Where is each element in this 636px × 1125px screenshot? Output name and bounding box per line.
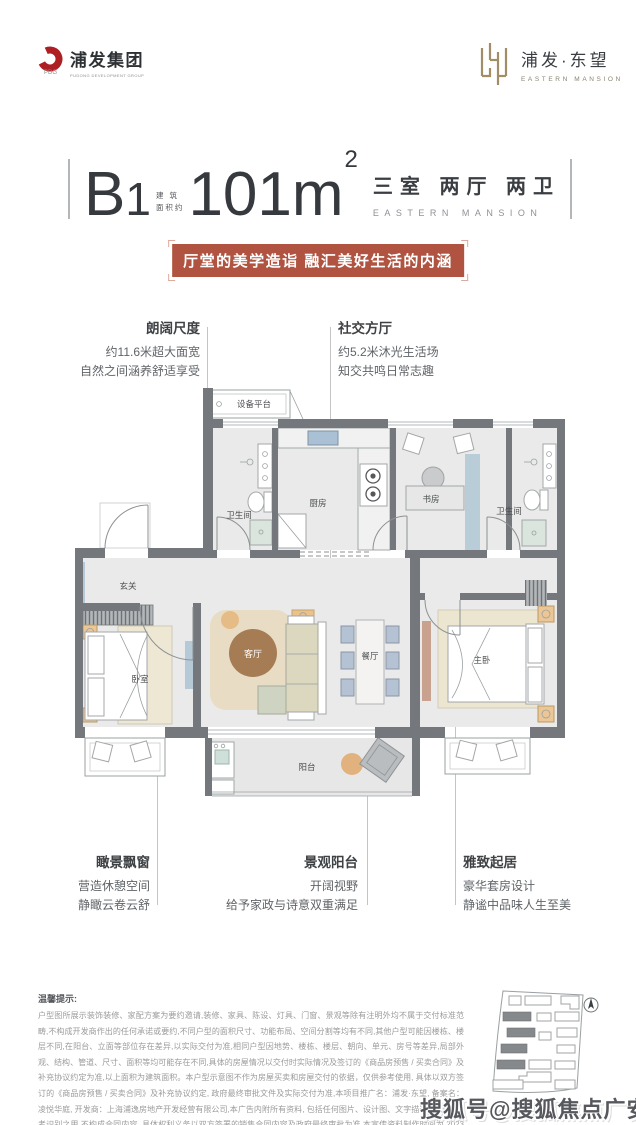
project-logo: 浦发·东望 EASTERN MANSION [477, 40, 623, 88]
developer-name: 浦发集团 [70, 46, 144, 71]
room-label-study: 书房 [422, 494, 439, 504]
room-count-sub: EASTERN MANSION [373, 208, 560, 218]
watermark: 搜狐号@搜狐焦点广安站 [420, 1092, 636, 1124]
callout-master-suite: 雅致起居 豪华套房设计 静谧中品味人生至美 [463, 851, 636, 914]
developer-logo: PDG 浦发集团 PUDONG DEVELOPMENT GROUP [35, 46, 144, 78]
bay-window-master [445, 738, 530, 774]
callout-balcony: 景观阳台 开阔视野 给予家政与诗意双重满足 [128, 851, 358, 914]
entry-door [100, 503, 150, 548]
disclaimer-block: 温馨提示: 户型图所展示装饰装修、家配方案为要约邀请,装修、家具、陈设、灯具、门… [38, 992, 464, 1125]
pudong-group-icon: PDG [35, 46, 65, 78]
callout-scale: 朗阔尺度 约11.6米超大面宽 自然之间涵养舒适享受 [0, 317, 200, 380]
dining-furniture [341, 620, 399, 704]
banner-corner [168, 274, 175, 281]
room-count: 三室 两厅 两卫 [373, 170, 560, 199]
banner-corner [461, 240, 468, 247]
room-label-living: 客厅 [244, 648, 262, 659]
callout-social-hall: 社交方厅 约5.2米沐光生活场 知交共鸣日常志趣 [338, 317, 568, 380]
living-room-furniture [210, 610, 326, 720]
disclaimer-label: 温馨提示: [38, 992, 464, 1005]
bay-window-bedroom [85, 738, 165, 776]
svg-text:设备平台: 设备平台 [237, 399, 271, 409]
banner-corner [461, 274, 468, 281]
room-label-kitchen: 厨房 [309, 498, 326, 508]
developer-subtitle: PUDONG DEVELOPMENT GROUP [70, 73, 144, 78]
slogan-text: 厅堂的美学造诣 融汇美好生活的内涵 [183, 253, 453, 270]
left-bracket-decoration [68, 159, 70, 219]
floorplan-drawing: 设备平台 [60, 386, 572, 822]
slogan-banner: 厅堂的美学造诣 融汇美好生活的内涵 [172, 244, 464, 277]
banner-corner [168, 240, 175, 247]
equipment-platform: 设备平台 [206, 390, 303, 419]
room-label-bath2: 卫生间 [496, 506, 522, 516]
area-note: 建 筑 面积约 [156, 190, 185, 214]
room-label-bath1: 卫生间 [226, 510, 252, 520]
room-label-master: 主卧 [473, 655, 491, 665]
unit-code: B1 [84, 168, 151, 221]
disclaimer-text: 户型图所展示装饰装修、家配方案为要约邀请,装修、家具、陈设、灯具、门窗、景观等除… [38, 1008, 464, 1125]
project-name: 浦发·东望 [521, 46, 623, 71]
room-label-bedroom: 卧室 [131, 674, 149, 684]
room-label-balcony: 阳台 [298, 762, 315, 772]
svg-text:PDG: PDG [44, 70, 57, 76]
site-plan-map [483, 988, 603, 1098]
project-subtitle: EASTERN MANSION [521, 76, 623, 83]
right-bracket-decoration [570, 159, 572, 219]
eastern-mansion-emblem-icon [477, 40, 511, 88]
room-label-dining: 餐厅 [361, 651, 379, 661]
floorplan-poster: { "header": { "left_logo": {"name": "浦发集… [0, 0, 636, 1125]
unit-area: 101m2 [188, 168, 356, 221]
north-arrow-icon [584, 998, 598, 1012]
unit-title-block: B1 建 筑 面积约 101m2 三室 两厅 两卫 EASTERN MANSIO… [74, 157, 566, 221]
room-count-block: 三室 两厅 两卫 EASTERN MANSION [373, 170, 560, 218]
room-label-foyer: 玄关 [119, 581, 137, 591]
